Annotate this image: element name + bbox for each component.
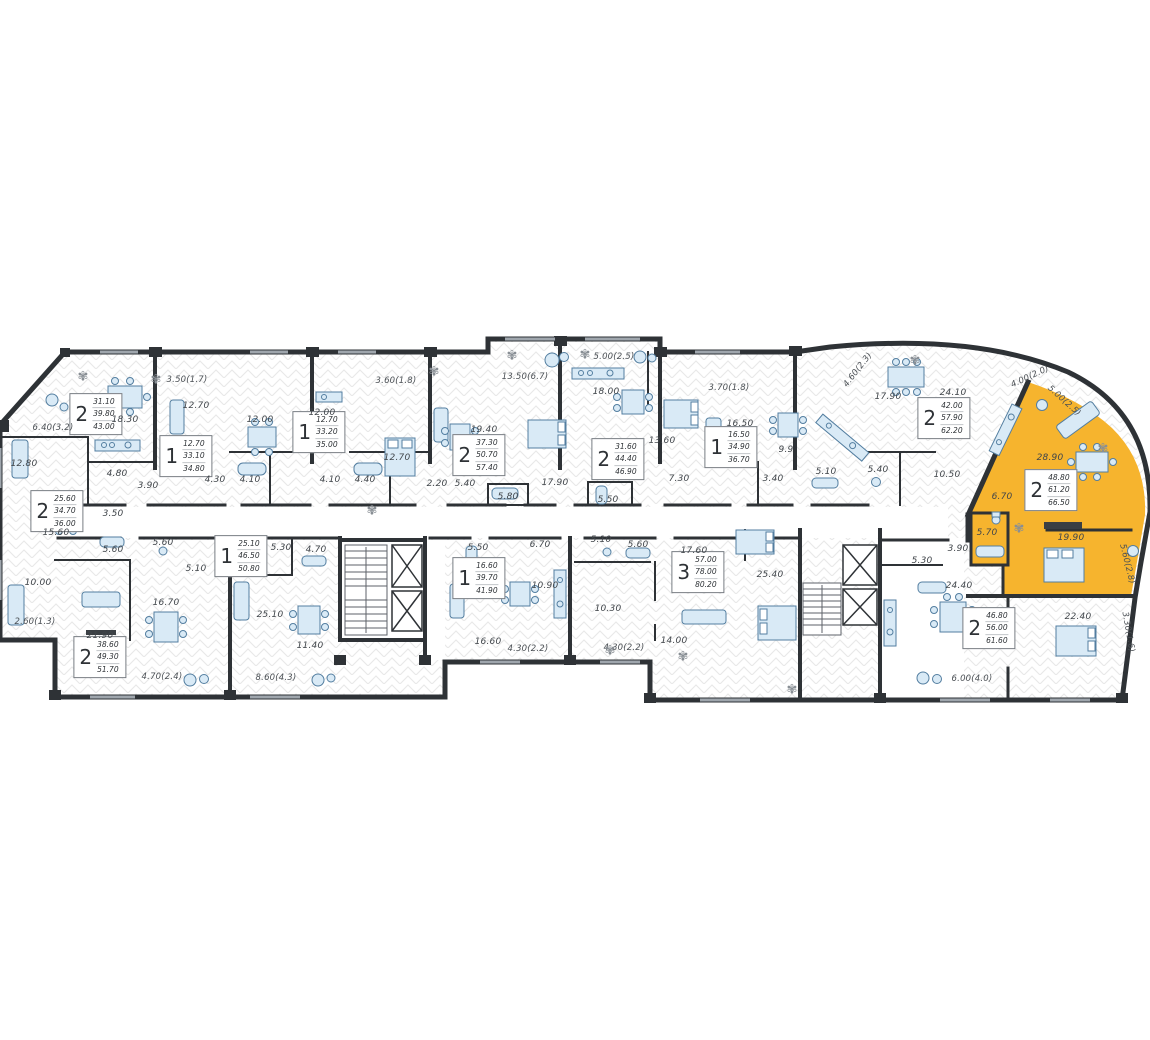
apartment-stat-e[interactable]: 2 37.3050.7057.40 — [452, 434, 505, 476]
plant-icon: ✾ — [78, 370, 89, 385]
area-figures: 48.8061.2066.50 — [1047, 472, 1070, 508]
room-count: 1 — [220, 546, 233, 566]
bed-f — [664, 400, 698, 428]
room-area-label: 22.40 — [1065, 612, 1092, 622]
room-count: 2 — [923, 408, 936, 428]
room-area-label: 17.90 — [542, 478, 569, 488]
apartment-stat-a[interactable]: 2 31.1039.8043.00 — [69, 393, 122, 435]
bath-h — [872, 478, 881, 487]
balcony-area-label: 8.60(4.3) — [256, 673, 297, 683]
sofa-j — [82, 592, 120, 607]
plant-icon: ✾ — [787, 683, 798, 698]
kitchen-f — [572, 368, 624, 379]
balcony-area-label: 13.50(6.7) — [502, 372, 548, 382]
plant-icon: ✾ — [910, 354, 921, 369]
bed-i — [1044, 548, 1084, 582]
bath-d — [354, 463, 382, 475]
area-figures: 16.5034.9036.70 — [727, 429, 750, 465]
bed-m2 — [758, 606, 796, 640]
room-area-label: 5.60 — [153, 538, 174, 548]
sofa-e — [434, 408, 448, 442]
area-figures: 57.0078.0080.20 — [694, 554, 717, 590]
room-area-label: 15.60 — [43, 528, 70, 538]
floor-plan: 2 31.1039.8043.00 2 25.6034.7036.00 1 12… — [0, 0, 1150, 1040]
bath-i — [976, 546, 1004, 557]
apartment-stat-m[interactable]: 3 57.0078.0080.20 — [671, 551, 724, 593]
balcony-area-label: 4.70(2.4) — [142, 672, 183, 682]
room-area-label: 5.80 — [498, 492, 519, 502]
balcony-area-label: 4.30(2.2) — [508, 644, 549, 654]
elevators-right — [843, 545, 877, 625]
plant-icon: ✾ — [429, 365, 440, 380]
room-area-label: 19.40 — [471, 425, 498, 435]
area-figures: 12.7033.2035.00 — [315, 414, 338, 450]
sofa-k — [234, 582, 249, 620]
room-count: 3 — [677, 562, 690, 582]
room-area-label: 4.10 — [240, 475, 261, 485]
room-count: 1 — [165, 446, 178, 466]
plant-icon: ✾ — [678, 650, 689, 665]
bed-n — [1056, 626, 1096, 656]
room-area-label: 5.50 — [468, 543, 489, 553]
staircase-left — [345, 545, 387, 635]
room-area-label: 24.40 — [946, 581, 973, 591]
kitchen-d — [316, 392, 342, 402]
room-area-label: 10.30 — [595, 604, 622, 614]
plant-icon: ✾ — [1098, 442, 1109, 457]
kitchen-a — [95, 440, 140, 451]
room-count: 1 — [298, 422, 311, 442]
apartment-stat-f[interactable]: 2 31.6044.4046.90 — [591, 438, 644, 480]
area-figures: 16.6039.7041.90 — [475, 560, 498, 596]
tv-stand-i — [1044, 522, 1082, 529]
room-area-label: 4.40 — [355, 475, 376, 485]
room-area-label: 5.30 — [912, 556, 933, 566]
toilet-i — [992, 512, 1000, 524]
room-area-label: 5.50 — [598, 495, 619, 505]
room-area-label: 28.90 — [1037, 453, 1064, 463]
room-area-label: 24.10 — [940, 388, 967, 398]
room-area-label: 16.60 — [475, 637, 502, 647]
room-area-label: 12.00 — [309, 408, 336, 418]
room-area-label: 5.40 — [455, 479, 476, 489]
room-count: 2 — [597, 449, 610, 469]
bath-c — [238, 463, 266, 475]
room-count: 2 — [968, 618, 981, 638]
room-area-label: 4.80 — [107, 469, 128, 479]
room-area-label: 10.50 — [934, 470, 961, 480]
room-area-label: 10.90 — [532, 581, 559, 591]
area-figures: 31.6044.4046.90 — [614, 441, 637, 477]
bed-e — [528, 420, 566, 448]
sofa-m — [682, 610, 726, 624]
area-figures: 38.6049.3051.70 — [96, 639, 119, 675]
room-area-label: 13.60 — [649, 436, 676, 446]
room-count: 2 — [1030, 480, 1043, 500]
room-area-label: 25.10 — [257, 610, 284, 620]
balcony-area-label: 6.40(3.2) — [33, 423, 74, 433]
room-area-label: 3.50 — [103, 509, 124, 519]
room-area-label: 12.70 — [183, 401, 210, 411]
room-area-label: 9.9 — [779, 445, 794, 455]
room-area-label: 5.10 — [816, 467, 837, 477]
plant-icon: ✾ — [580, 348, 591, 363]
room-area-label: 18.30 — [112, 415, 139, 425]
kitchen-l — [554, 570, 566, 618]
room-area-label: 4.10 — [320, 475, 341, 485]
apartment-stat-c[interactable]: 1 12.7033.1034.80 — [159, 435, 212, 477]
room-area-label: 16.50 — [727, 419, 754, 429]
bed-m1 — [736, 530, 774, 554]
room-area-label: 21.90 — [87, 631, 114, 641]
room-area-label: 3.40 — [763, 474, 784, 484]
area-figures: 42.0057.9062.20 — [940, 400, 963, 436]
bath-n — [918, 582, 946, 593]
room-area-label: 7.30 — [669, 474, 690, 484]
room-area-label: 17.90 — [875, 392, 902, 402]
bath-g — [812, 478, 838, 488]
area-figures: 31.1039.8043.00 — [92, 396, 115, 432]
staircase-right — [803, 583, 841, 635]
room-area-label: 3.90 — [948, 544, 969, 554]
area-figures: 12.7033.1034.80 — [182, 438, 205, 474]
room-count: 2 — [79, 647, 92, 667]
room-area-label: 12.70 — [384, 453, 411, 463]
room-area-label: 4.30 — [205, 475, 226, 485]
room-area-label: 3.90 — [138, 481, 159, 491]
room-count: 2 — [458, 445, 471, 465]
room-count: 2 — [36, 501, 49, 521]
balcony-area-label: 3.60(1.8) — [376, 376, 417, 386]
apartment-stat-j[interactable]: 2 38.6049.3051.70 — [73, 636, 126, 678]
floor-plan-svg — [0, 0, 1150, 1040]
room-area-label: 18.00 — [593, 387, 620, 397]
apartment-stat-h[interactable]: 2 42.0057.9062.20 — [917, 397, 970, 439]
room-area-label: 4.70 — [306, 545, 327, 555]
area-figures: 25.1046.5050.80 — [237, 538, 260, 574]
area-figures: 37.3050.7057.40 — [475, 437, 498, 473]
area-figures: 46.8056.0061.60 — [985, 610, 1008, 646]
apartment-stat-i-highlighted[interactable]: 2 48.8061.2066.50 — [1024, 469, 1077, 511]
plant-icon: ✾ — [367, 504, 378, 519]
room-area-label: 17.60 — [681, 546, 708, 556]
room-area-label: 19.90 — [1058, 533, 1085, 543]
apartment-stat-b[interactable]: 2 25.6034.7036.00 — [30, 490, 83, 532]
kitchen-n — [884, 600, 896, 646]
plant-icon: ✾ — [605, 644, 616, 659]
room-area-label: 5.30 — [271, 543, 292, 553]
balcony-area-label: 5.00(2.5) — [594, 352, 635, 362]
room-area-label: 6.70 — [530, 540, 551, 550]
room-area-label: 5.60 — [628, 540, 649, 550]
room-area-label: 11.40 — [297, 641, 324, 651]
plant-icon: ✾ — [151, 373, 162, 388]
balcony-area-label: 2.60(1.3) — [15, 617, 56, 627]
area-figures: 25.6034.7036.00 — [53, 493, 76, 529]
room-count: 1 — [710, 437, 723, 457]
room-area-label: 2.20 — [427, 479, 448, 489]
room-area-label: 25.40 — [757, 570, 784, 580]
plant-icon: ✾ — [507, 349, 518, 364]
apartment-stat-k[interactable]: 1 25.1046.5050.80 — [214, 535, 267, 577]
room-area-label: 12.80 — [11, 459, 38, 469]
room-area-label: 6.70 — [992, 492, 1013, 502]
room-area-label: 5.70 — [977, 528, 998, 538]
balcony-area-label: 3.70(1.8) — [709, 383, 750, 393]
balcony-area-label: 6.00(4.0) — [952, 674, 993, 684]
room-area-label: 10.00 — [25, 578, 52, 588]
room-count: 1 — [458, 568, 471, 588]
toilet-j — [159, 547, 167, 555]
apartment-stat-n[interactable]: 2 46.8056.0061.60 — [962, 607, 1015, 649]
room-area-label: 5.10 — [186, 564, 207, 574]
room-area-label: 5.40 — [868, 465, 889, 475]
room-count: 2 — [75, 404, 88, 424]
room-area-label: 5.60 — [103, 545, 124, 555]
room-area-label: 12.00 — [247, 415, 274, 425]
room-area-label: 5.10 — [591, 535, 612, 545]
plant-icon: ✾ — [1014, 522, 1025, 537]
balcony-area-label: 3.50(1.7) — [167, 375, 208, 385]
room-area-label: 14.00 — [661, 636, 688, 646]
bath-k — [302, 556, 326, 566]
apartment-stat-l[interactable]: 1 16.6039.7041.90 — [452, 557, 505, 599]
room-area-label: 16.70 — [153, 598, 180, 608]
apartment-stat-g[interactable]: 1 16.5034.9036.70 — [704, 426, 757, 468]
